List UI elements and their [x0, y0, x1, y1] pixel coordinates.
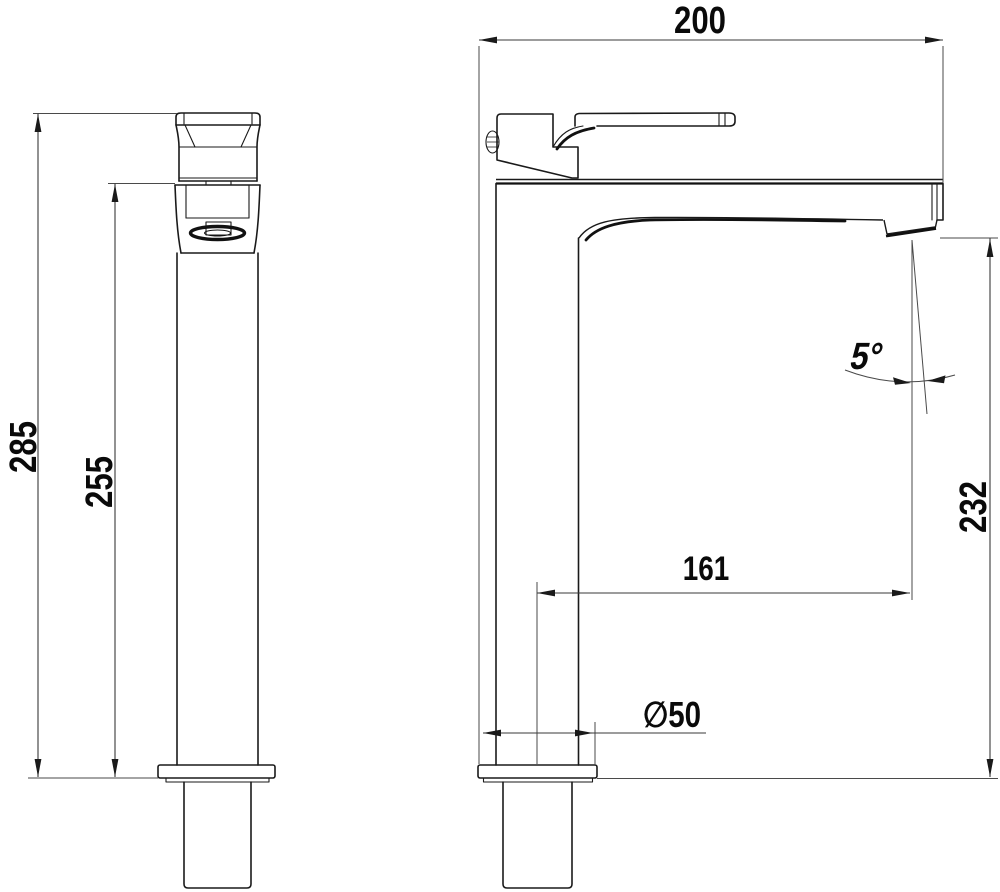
- side-handle: [176, 113, 260, 185]
- dim-spout-height-232: 232: [940, 238, 998, 777]
- front-lever: [575, 113, 735, 126]
- dim-161-arrow-left: [537, 590, 555, 597]
- dim-255-label: 255: [79, 456, 121, 508]
- side-view: [158, 113, 275, 888]
- side-handle-side-left: [176, 125, 179, 181]
- dim-285-arrow-down: [35, 759, 42, 777]
- dim-161-arrow-right: [892, 590, 910, 597]
- front-nozzle-aerator: [884, 220, 937, 236]
- dimensions: 200 285 255 232 161: [3, 0, 998, 778]
- dim-50-label: ∅50: [643, 694, 701, 734]
- front-base-shank: [503, 782, 572, 888]
- dim-161-label: 161: [683, 549, 730, 587]
- dim-232-label: 232: [953, 481, 995, 533]
- dim-285-label: 285: [3, 421, 45, 473]
- side-spout-block: [175, 185, 260, 253]
- angle-arrow-right: [928, 375, 946, 383]
- front-spout: [496, 180, 943, 241]
- dim-angle-label: 5°: [847, 335, 887, 378]
- side-handle-top-bar: [176, 113, 260, 125]
- side-base-shank: [184, 782, 251, 888]
- dim-overall-height-285: 285: [3, 114, 177, 778]
- side-body-column: [177, 253, 258, 765]
- front-aerator-face: [886, 229, 936, 237]
- side-aerator-ring: [191, 227, 245, 240]
- drawing-canvas: 200 285 255 232 161: [0, 0, 1000, 892]
- dim-spout-angle-5deg: 5°: [845, 240, 955, 600]
- side-handle-slant-right: [241, 125, 251, 147]
- dim-255-arrow-down: [112, 759, 119, 777]
- dim-spout-reach-161: 161: [537, 549, 910, 764]
- dim-body-height-255: 255: [79, 184, 175, 778]
- front-nozzle-left-edge: [884, 220, 887, 234]
- dim-255-arrow-up: [112, 184, 119, 202]
- front-handle-body: [486, 114, 594, 178]
- dim-285-arrow-up: [35, 114, 42, 132]
- dim-232-arrow-up: [987, 239, 994, 257]
- front-base-flange: [478, 765, 597, 778]
- front-base: [478, 765, 597, 888]
- side-base: [158, 765, 275, 888]
- side-base-flange: [158, 765, 275, 778]
- side-spout-side-left: [175, 185, 181, 253]
- front-handle-back-curve-accent: [557, 128, 594, 149]
- dim-50-arrow-left: [483, 730, 501, 737]
- front-spout-right-edge: [937, 184, 943, 221]
- dim-base-diameter-50: ∅50: [483, 694, 706, 765]
- side-handle-side-right: [257, 125, 260, 181]
- dim-200-arrow-left: [479, 37, 497, 44]
- front-handle-outline: [497, 114, 578, 178]
- faucet-technical-drawing: 200 285 255 232 161: [0, 0, 1000, 892]
- dim-200-label: 200: [674, 0, 726, 42]
- angle-slanted-line: [912, 240, 927, 414]
- dim-232-arrow-down: [987, 759, 994, 777]
- front-spout-underside-accent: [586, 219, 845, 240]
- dim-50-arrow-right: [575, 730, 593, 737]
- dim-200-arrow-right: [925, 37, 943, 44]
- side-spout-side-right: [254, 185, 260, 253]
- front-lever-bar: [575, 113, 735, 126]
- angle-arrow-left: [893, 377, 911, 385]
- front-view: [478, 113, 943, 888]
- side-handle-slant-left: [185, 125, 195, 147]
